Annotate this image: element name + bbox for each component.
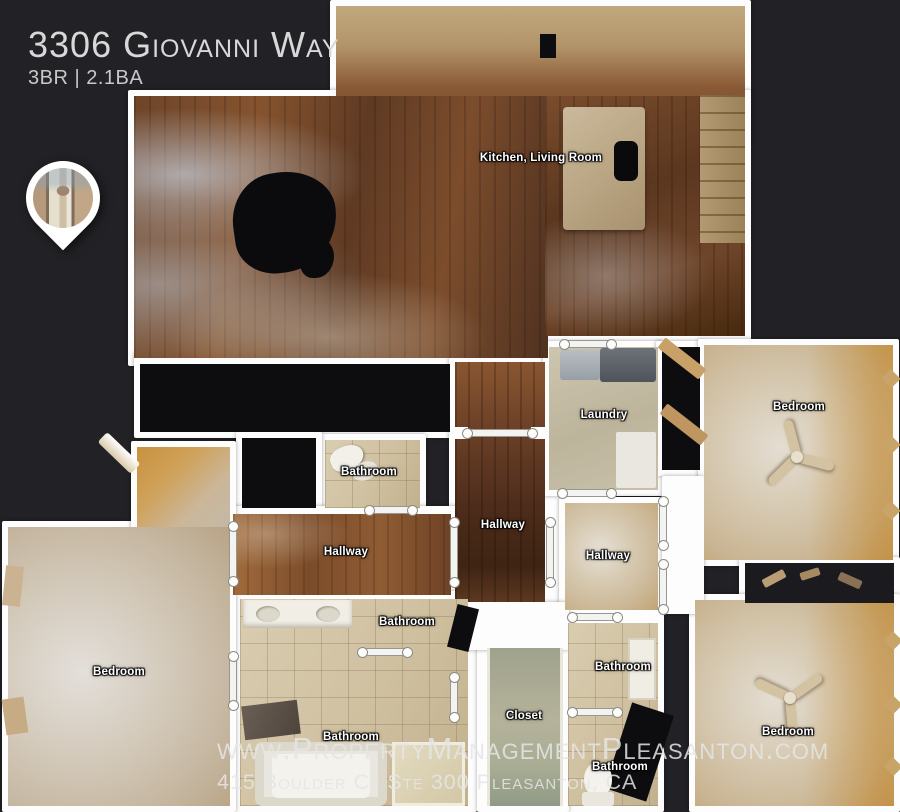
page-title: 3306 Giovanni Way <box>28 26 340 64</box>
label-bathroom-master: Bathroom <box>323 731 379 743</box>
door-marker <box>564 340 612 348</box>
door-marker-dot <box>567 707 578 718</box>
door-marker <box>562 489 612 497</box>
label-bathroom-top: Bathroom <box>341 466 397 478</box>
kitchen-island-hole <box>614 141 638 181</box>
listing-header: 3306 Giovanni Way 3BR | 2.1BA <box>28 26 340 90</box>
door-marker <box>659 501 667 546</box>
door-marker-dot <box>228 576 239 587</box>
door-marker-dot <box>658 540 669 551</box>
label-hallway-right: Hallway <box>586 550 630 562</box>
door-marker <box>450 522 458 583</box>
door-marker-dot <box>228 700 239 711</box>
living-room-floor <box>134 96 548 358</box>
photo-pin-marker[interactable] <box>22 158 104 262</box>
door-marker-dot <box>449 712 460 723</box>
door-marker-dot <box>606 488 617 499</box>
door-marker-dot <box>612 612 623 623</box>
label-bedroom-left: Bedroom <box>93 666 145 678</box>
door-marker <box>362 648 408 656</box>
label-bathroom-toilet-room: Bathroom <box>379 616 435 628</box>
hallway-center-floor <box>455 362 545 602</box>
label-closet: Closet <box>506 710 542 722</box>
door-marker <box>467 429 533 437</box>
door-marker-dot <box>658 496 669 507</box>
pin-photo-thumbnail <box>33 168 93 228</box>
sink-right <box>316 606 340 622</box>
door-marker <box>659 564 667 610</box>
door-marker-dot <box>559 339 570 350</box>
door-marker-dot <box>462 428 473 439</box>
fan-hub <box>791 451 803 463</box>
toilet-right-tank <box>582 792 614 806</box>
door-marker-dot <box>658 559 669 570</box>
laundry-appliance <box>616 432 656 488</box>
door-marker-dot <box>612 707 623 718</box>
door-marker-dot <box>545 577 556 588</box>
bathtub-basin <box>272 754 370 798</box>
door-marker-dot <box>567 612 578 623</box>
door-marker <box>229 526 237 582</box>
label-hallway-center: Hallway <box>481 519 525 531</box>
bedroom-left-ext-floor <box>137 447 230 527</box>
label-bathroom-right-upper: Bathroom <box>595 661 651 673</box>
door-marker <box>572 708 618 716</box>
washer-dryer <box>600 348 656 382</box>
label-bathroom-right-lower: Bathroom <box>592 761 648 773</box>
door-marker-dot <box>449 672 460 683</box>
label-laundry: Laundry <box>581 409 628 421</box>
sink-left <box>256 606 280 622</box>
bed-bath-summary: 3BR | 2.1BA <box>28 67 340 90</box>
closet-center-floor <box>487 648 563 806</box>
scan-void-strip <box>140 364 450 432</box>
door-marker-dot <box>449 577 460 588</box>
kitchen-counter-notch <box>540 34 556 58</box>
door-marker-dot <box>228 521 239 532</box>
door-marker-dot <box>606 339 617 350</box>
door-marker-dot <box>449 517 460 528</box>
door-marker-dot <box>407 505 418 516</box>
door-marker-dot <box>228 651 239 662</box>
laundry-counter <box>560 350 600 380</box>
door-marker-dot <box>658 604 669 615</box>
door-marker-dot <box>364 505 375 516</box>
fan-hub <box>784 692 796 704</box>
door-marker-dot <box>357 647 368 658</box>
scan-void-box <box>242 438 316 508</box>
door-marker <box>450 677 458 718</box>
label-kitchen-living-room: Kitchen, Living Room <box>480 152 602 164</box>
floorplan-viewer: Kitchen, Living RoomLaundryBedroomBathro… <box>0 0 900 812</box>
bathroom-mat <box>241 700 301 741</box>
door-marker-dot <box>527 428 538 439</box>
label-bedroom-top-right: Bedroom <box>773 401 825 413</box>
label-bedroom-bottom-right: Bedroom <box>762 726 814 738</box>
door-marker-dot <box>545 517 556 528</box>
label-hallway-left: Hallway <box>324 546 368 558</box>
door-marker <box>572 613 618 621</box>
door-marker <box>369 506 413 514</box>
door-marker-dot <box>402 647 413 658</box>
door-marker <box>546 522 554 583</box>
kitchen-cabinets-right <box>700 95 745 243</box>
door-marker-dot <box>557 488 568 499</box>
door-marker <box>229 656 237 706</box>
shower-stall <box>392 742 465 806</box>
